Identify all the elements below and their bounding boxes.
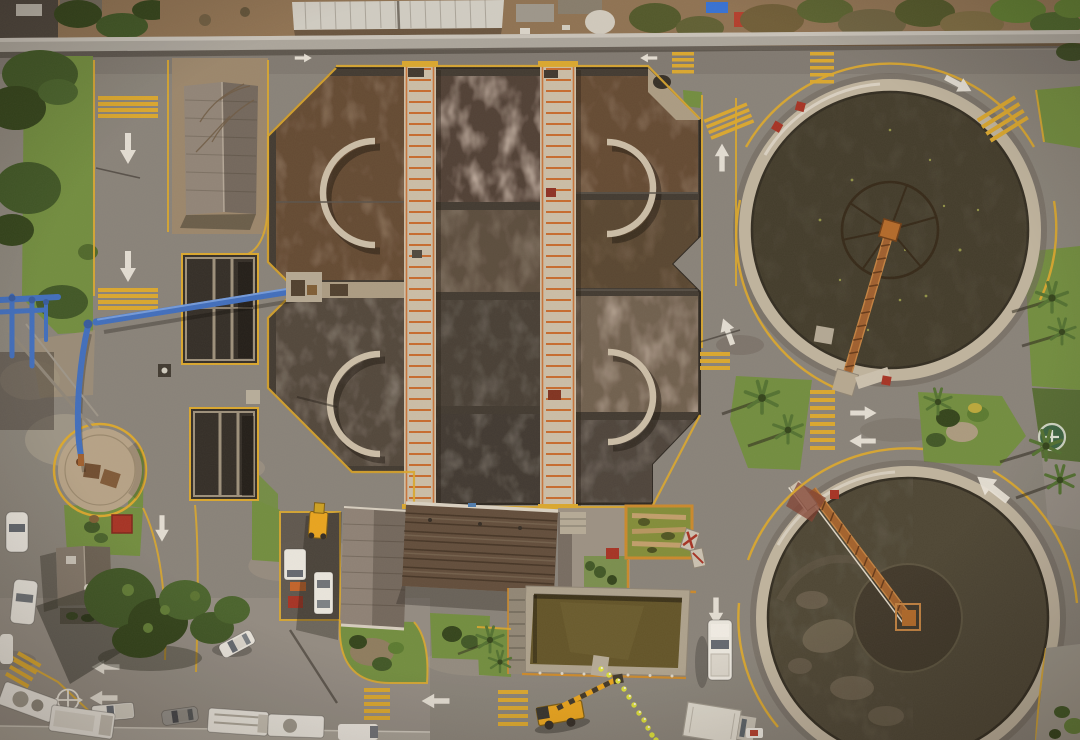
aerial-photo-wastewater-plant bbox=[0, 0, 1080, 740]
photo-canvas bbox=[0, 0, 1080, 740]
photo-grade bbox=[0, 0, 1080, 740]
